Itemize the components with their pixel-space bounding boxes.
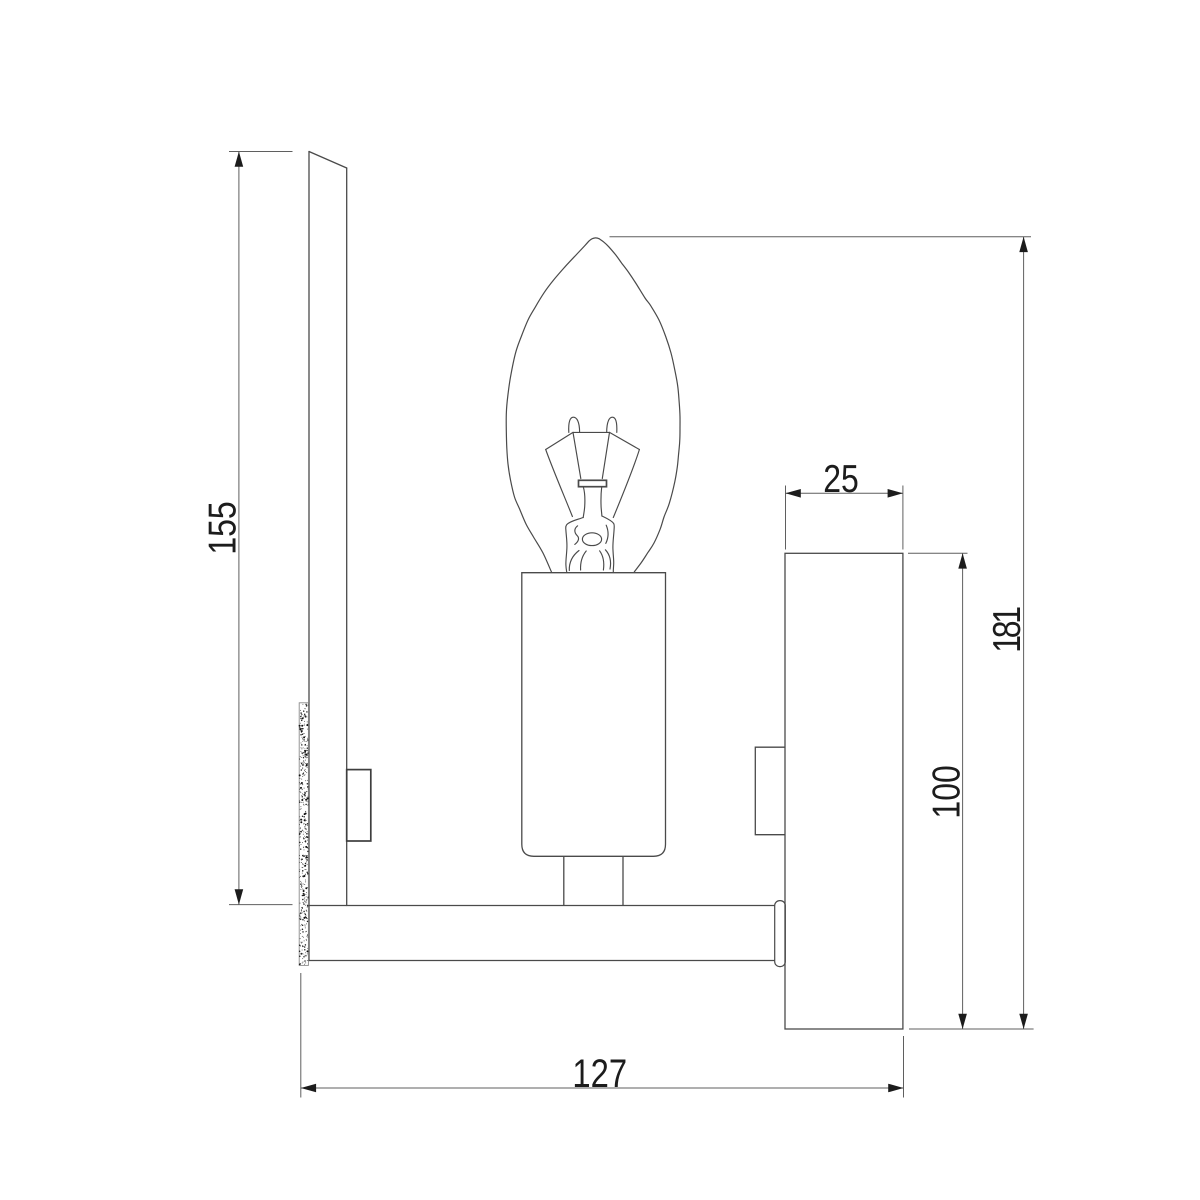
svg-text:100: 100: [926, 765, 969, 818]
svg-text:127: 127: [572, 1052, 627, 1096]
svg-text:155: 155: [202, 501, 245, 554]
svg-text:181: 181: [986, 607, 1029, 652]
svg-text:25: 25: [823, 458, 859, 501]
